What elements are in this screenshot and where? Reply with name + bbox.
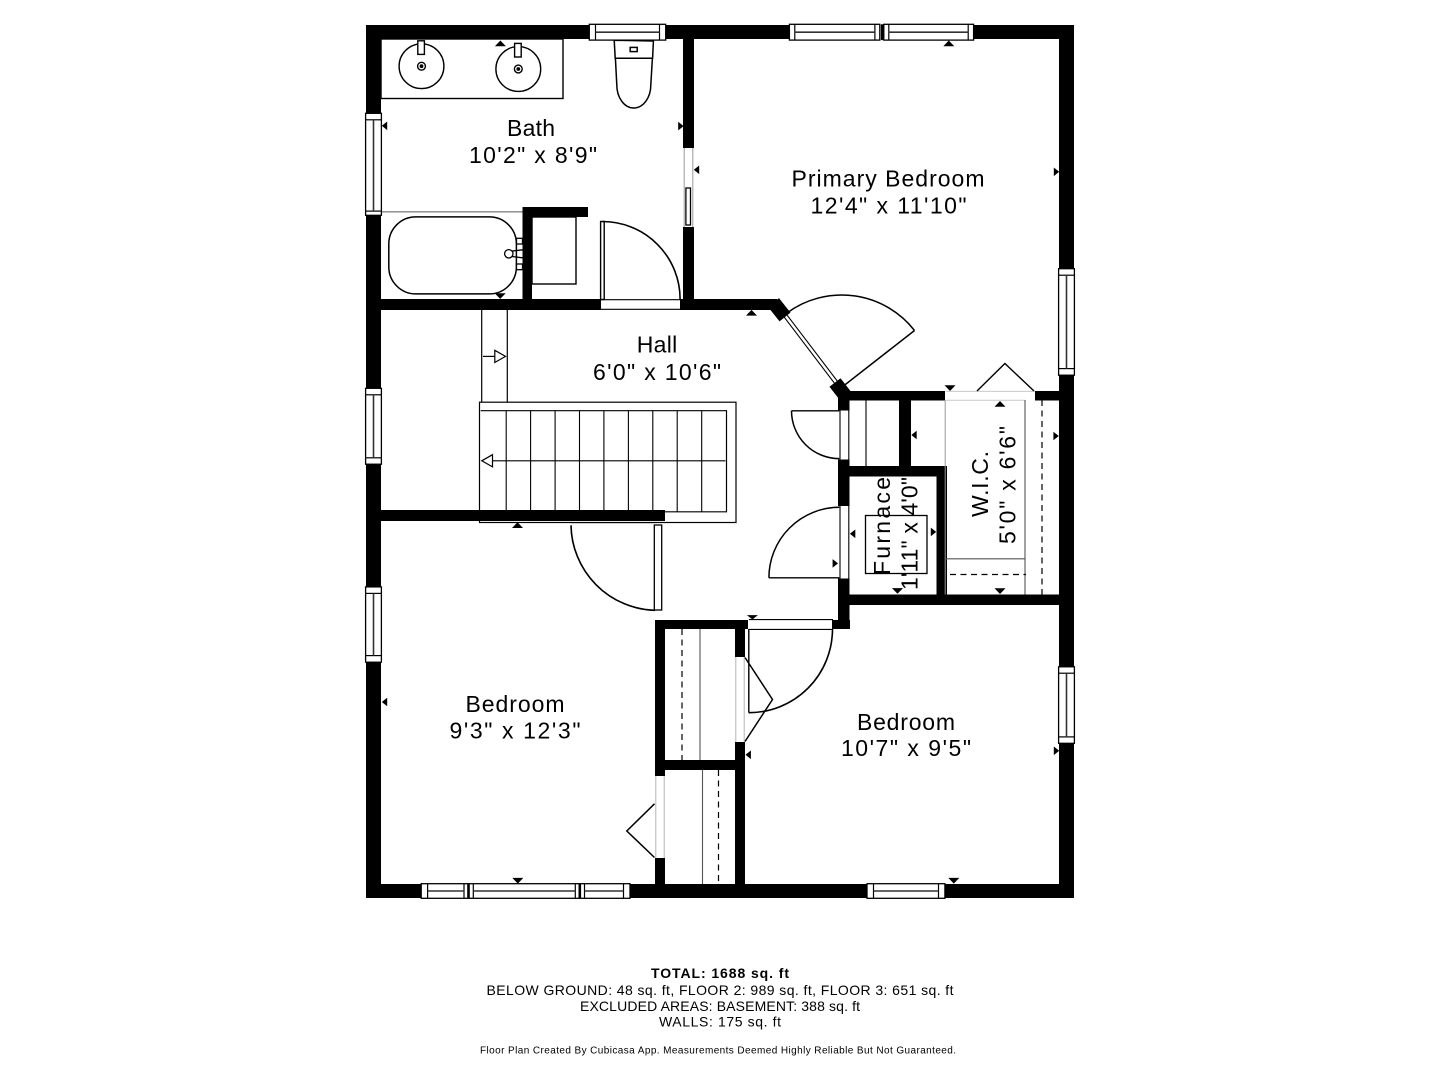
svg-text:Bath: Bath (507, 115, 555, 141)
svg-text:Bedroom: Bedroom (857, 709, 955, 735)
svg-text:6'0" x 10'6": 6'0" x 10'6" (593, 359, 721, 385)
svg-text:Bedroom: Bedroom (466, 691, 565, 717)
svg-text:5'0" x 6'6": 5'0" x 6'6" (995, 426, 1021, 544)
svg-text:EXCLUDED AREAS: BASEMENT: 388: EXCLUDED AREAS: BASEMENT: 388 sq. ft (580, 998, 860, 1014)
svg-text:Hall: Hall (637, 332, 678, 358)
svg-text:W.I.C.: W.I.C. (967, 451, 993, 517)
svg-text:Floor Plan Created By Cubicasa: Floor Plan Created By Cubicasa App. Meas… (480, 1046, 956, 1057)
svg-text:1'11" x 4'0": 1'11" x 4'0" (897, 477, 923, 590)
svg-text:WALLS: 175 sq. ft: WALLS: 175 sq. ft (659, 1014, 781, 1030)
svg-text:Primary Bedroom: Primary Bedroom (792, 166, 985, 192)
svg-text:BELOW GROUND: 48 sq. ft, FLOOR: BELOW GROUND: 48 sq. ft, FLOOR 2: 989 sq… (487, 982, 954, 998)
svg-text:9'3" x 12'3": 9'3" x 12'3" (450, 717, 581, 743)
svg-text:TOTAL: 1688 sq. ft: TOTAL: 1688 sq. ft (651, 965, 789, 981)
